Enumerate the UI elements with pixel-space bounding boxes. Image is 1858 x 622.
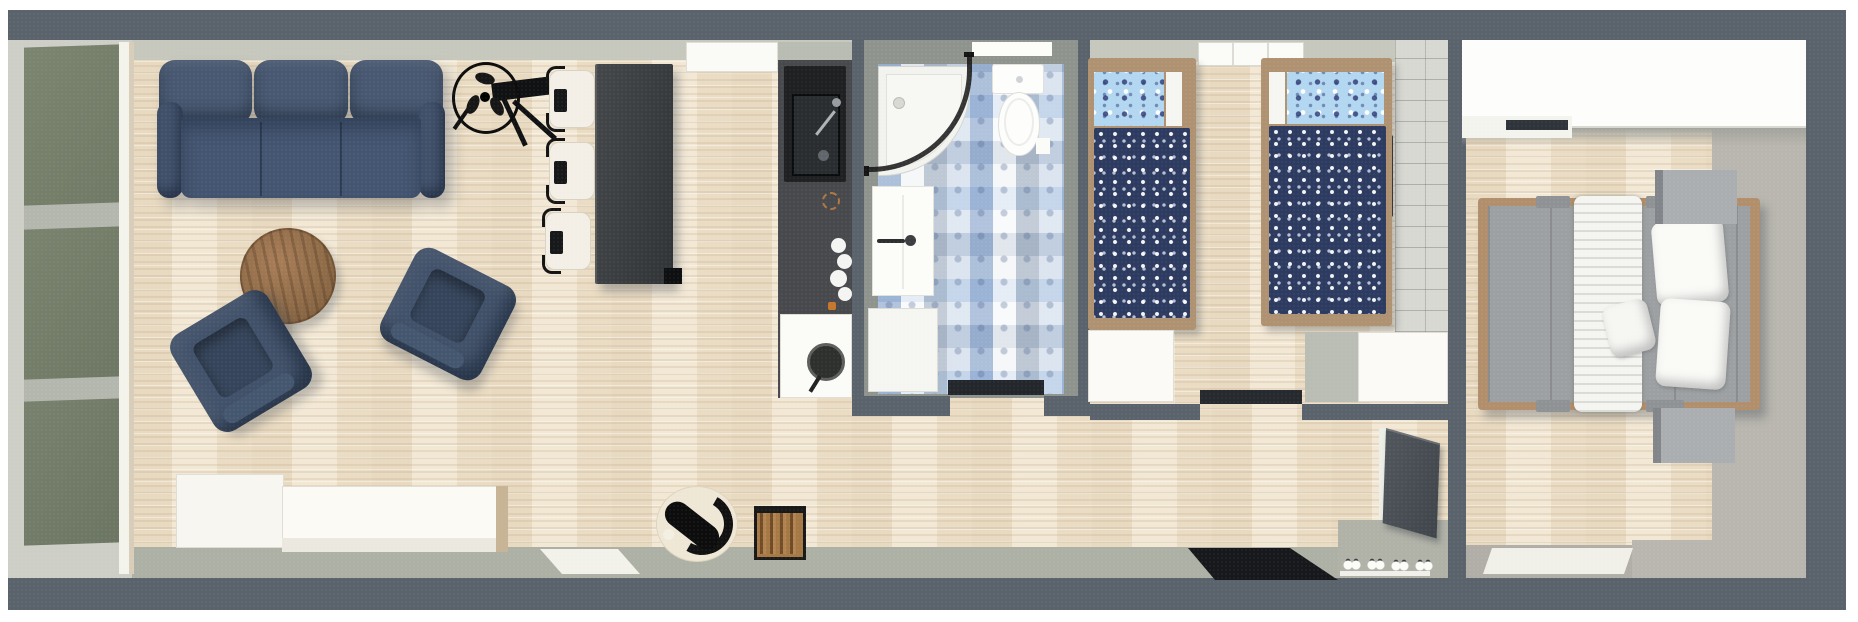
stool-leg-frame <box>546 113 565 132</box>
sideboard <box>176 474 508 554</box>
sideboard-left-box <box>176 474 284 548</box>
bar-stool-1 <box>549 70 595 128</box>
sofa-arm-left <box>157 102 183 198</box>
nightstand-top <box>1655 170 1737 224</box>
fan-blade <box>474 71 496 87</box>
master-door-threshold <box>1483 548 1633 574</box>
master-pillow <box>1650 217 1729 307</box>
sofa-back-cushions <box>159 60 443 124</box>
floor-edge-strip <box>129 42 134 574</box>
kids-bottom-wall-right <box>1302 404 1448 420</box>
stool-leg-frame <box>542 208 561 227</box>
hob-knob <box>831 238 846 253</box>
fan-hub <box>480 92 490 102</box>
master-gray-rug-bottom <box>1632 540 1714 578</box>
kids-tile-wall <box>1395 40 1448 332</box>
outer-wall-top <box>8 10 1846 40</box>
kitchen-counter <box>778 60 852 398</box>
bathroom <box>864 40 1078 398</box>
vanity-sink <box>872 186 934 296</box>
sofa-arm-right <box>419 102 445 198</box>
bed-gray-tab <box>1536 196 1570 208</box>
floor-plan <box>0 0 1858 622</box>
glass-door-inner-frame <box>119 42 129 574</box>
bathroom-wall-shelf <box>972 42 1052 56</box>
gas-burner-ring <box>822 192 840 210</box>
glass-panel-green-1 <box>24 44 120 205</box>
pet-head <box>663 529 674 540</box>
stool-leg-frame <box>546 185 565 204</box>
bed-pillow <box>1094 72 1164 126</box>
bed-sheet-fold <box>1166 72 1182 126</box>
stool-seatback <box>554 161 567 184</box>
firewood-crate <box>754 506 806 560</box>
stool-seatback <box>550 231 563 254</box>
sideboard-front-shade <box>282 538 496 552</box>
toilet-paper-holder <box>1036 138 1050 154</box>
sideboard-wood-trim <box>496 486 508 552</box>
shoe-pair <box>1367 555 1385 571</box>
double-bed <box>1478 198 1760 410</box>
pet-bed <box>656 486 738 562</box>
glass-door-unit <box>8 40 132 578</box>
wardrobe <box>1462 40 1806 128</box>
bathroom-bottom-wall-left <box>852 396 950 416</box>
bed-gray-tab <box>1536 400 1570 412</box>
shoe-pair <box>1343 555 1361 571</box>
bed-sheet-fold <box>1269 72 1285 124</box>
master-pillow <box>1655 298 1731 391</box>
stool-leg-frame <box>542 255 561 274</box>
glass-panel-frame <box>24 44 120 545</box>
faucet-bar <box>877 239 905 243</box>
sofa <box>155 60 447 200</box>
kids-bedroom <box>1090 40 1448 404</box>
toilet-cistern <box>992 64 1044 94</box>
shoe-pair <box>1415 556 1433 572</box>
kids-bottom-wall-left <box>1090 404 1200 420</box>
flush-button <box>1016 76 1023 83</box>
sink-strainer <box>818 150 829 161</box>
bar-table <box>595 64 673 284</box>
master-bedroom <box>1466 40 1806 578</box>
toilet-seat-line <box>1004 98 1034 146</box>
nightstand-bottom <box>1653 408 1735 463</box>
hob-knob <box>838 287 852 301</box>
orange-knob <box>828 302 836 310</box>
bar-stool-3 <box>545 212 591 270</box>
frying-pan <box>807 343 845 381</box>
single-bed-left <box>1088 58 1196 330</box>
bed-duvet <box>1269 126 1386 314</box>
hob-knob <box>830 270 847 287</box>
bed-pillow <box>1287 72 1384 124</box>
fan-blade <box>487 95 507 118</box>
kids-gray-dresser <box>1305 332 1358 402</box>
kitchen-upper-counter <box>686 42 778 72</box>
kitchen-counter-top-face <box>778 42 852 62</box>
faucet-base-dot <box>832 98 841 107</box>
crate-logs <box>760 512 800 554</box>
single-bed-right <box>1261 58 1392 326</box>
stool-leg-frame <box>546 138 565 157</box>
stool-leg-frame <box>546 66 565 85</box>
kids-cabinet-left <box>1088 330 1174 402</box>
shower-door-handle <box>864 166 869 176</box>
pan-handle <box>809 375 822 392</box>
kids-cabinet-right <box>1358 332 1448 402</box>
wardrobe-handle-bar <box>1506 120 1568 130</box>
entry-door-open <box>1383 428 1440 538</box>
kids-doormat <box>1200 390 1302 404</box>
glass-panel-green-3 <box>24 398 120 545</box>
sofa-seat-seam <box>260 122 262 196</box>
bathroom-bottom-wall-right <box>1044 396 1090 416</box>
washer-cabinet <box>868 308 938 392</box>
bar-stool-2 <box>549 142 595 200</box>
crate-rim <box>757 509 803 513</box>
outer-wall-right <box>1806 40 1846 578</box>
sofa-seat <box>181 118 421 198</box>
oven-cabinet <box>780 314 852 398</box>
shower-door-handle <box>964 52 974 57</box>
bathroom-doormat <box>948 380 1044 395</box>
bar-table-foot <box>664 268 682 284</box>
shoe-pair <box>1391 556 1409 572</box>
wall-kitchen-bathroom <box>852 40 864 398</box>
sofa-cushion <box>254 60 347 124</box>
faucet-head <box>905 235 916 246</box>
glass-panel-green-2 <box>24 226 120 379</box>
bed-duvet <box>1094 128 1190 318</box>
sofa-seat-seam <box>340 122 342 196</box>
outer-wall-bottom <box>8 578 1846 610</box>
fan-cage <box>452 62 520 134</box>
stool-seatback <box>554 89 567 112</box>
hob-knob <box>837 254 852 269</box>
toilet-bowl <box>998 92 1040 156</box>
